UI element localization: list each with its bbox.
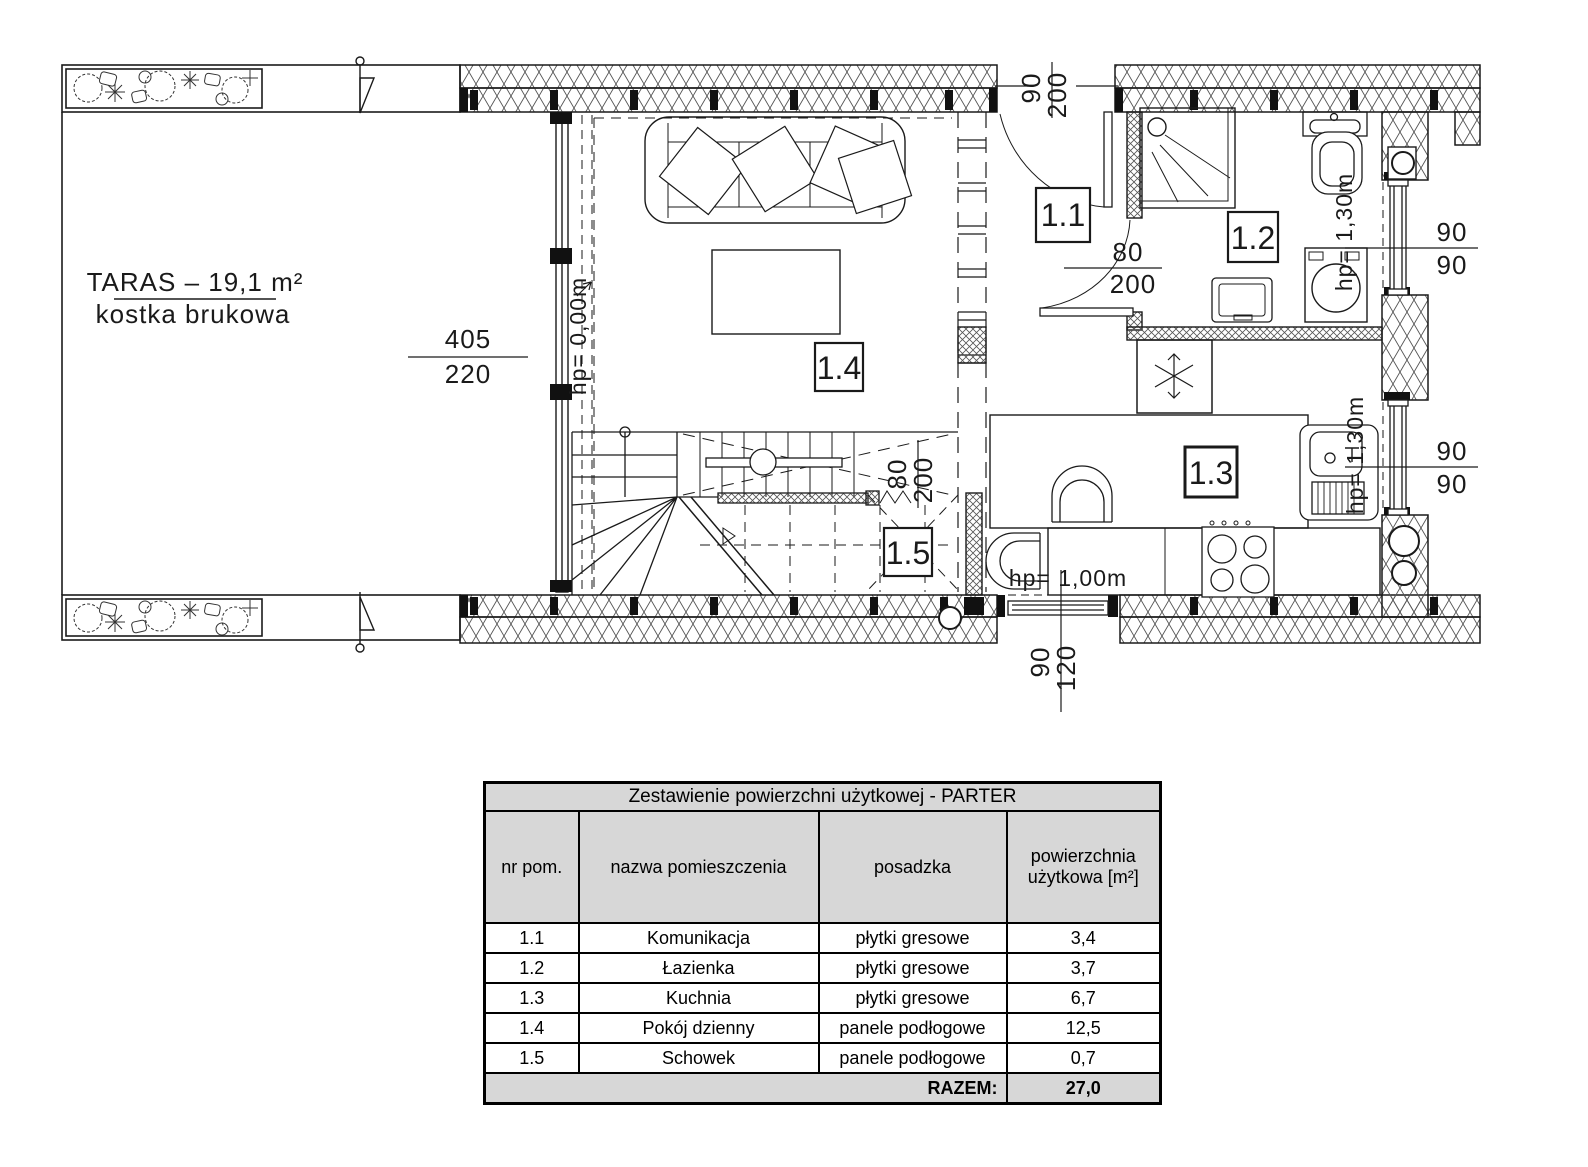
kitchen-side-window <box>1383 400 1408 515</box>
dim-entrance: 90 200 <box>995 62 1118 118</box>
floor-plan-sheet: TARAS – 19,1 m² kostka brukowa <box>0 0 1588 1167</box>
col-header-floor-finish: posadzka <box>819 811 1007 923</box>
cell-room-no: 1.4 <box>485 1013 579 1043</box>
dim-bath-door: 80 200 <box>1064 237 1162 299</box>
cell-floor-finish: płytki gresowe <box>819 953 1007 983</box>
cell-area: 6,7 <box>1007 983 1161 1013</box>
interior-partition <box>958 112 986 595</box>
room-labels <box>815 188 1278 576</box>
cell-area: 3,4 <box>1007 923 1161 953</box>
terrace <box>62 65 460 640</box>
kitchen-bottom-window <box>1008 595 1108 615</box>
cell-room-name: Komunikacja <box>579 923 819 953</box>
kitchen-table <box>990 415 1308 528</box>
terrace-material-label: kostka brukowa <box>96 299 291 329</box>
level-living-marker: hp= 0,00m <box>565 277 591 395</box>
dim-stairs: 80 200 <box>882 440 938 508</box>
planter-plants-bottom <box>74 600 258 635</box>
total-value: 27,0 <box>1007 1073 1161 1104</box>
dim-bath-window-num: 90 <box>1437 217 1468 247</box>
bath-cabinet <box>1212 278 1272 322</box>
room-label-1-2: 1.2 <box>1231 220 1275 256</box>
shower <box>1140 108 1235 208</box>
area-summary-table: Zestawienie powierzchni użytkowej - PART… <box>483 781 1159 1105</box>
table-total-row: RAZEM: 27,0 <box>485 1073 1161 1104</box>
cell-floor-finish: płytki gresowe <box>819 983 1007 1013</box>
room-label-1-4: 1.4 <box>817 350 861 386</box>
level-kitchen-side-window: hp= 1,30m <box>1342 396 1368 514</box>
section-marker-bottom <box>356 592 374 652</box>
dim-kitchen-side-window-num: 90 <box>1437 436 1468 466</box>
terrace-bottom-edge <box>62 595 460 640</box>
dim-kitchen-side-window-den: 90 <box>1437 469 1468 499</box>
coffee-table <box>712 250 840 334</box>
dim-entrance-den: 200 <box>1042 72 1072 118</box>
cell-floor-finish: panele podłogowe <box>819 1043 1007 1073</box>
room-label-1-5: 1.5 <box>886 535 930 571</box>
total-label: RAZEM: <box>485 1073 1007 1104</box>
hob <box>1202 521 1274 597</box>
cell-room-name: Pokój dzienny <box>579 1013 819 1043</box>
planter-plants-top <box>74 70 258 105</box>
dim-kitchen-bottom-window-den: 120 <box>1051 645 1081 691</box>
room-label-1-3: 1.3 <box>1189 455 1233 491</box>
dim-stairs-den: 200 <box>908 457 938 503</box>
dim-terrace-window-num: 405 <box>445 324 491 354</box>
cell-room-name: Kuchnia <box>579 983 819 1013</box>
sofa <box>645 117 912 223</box>
cell-room-name: Łazienka <box>579 953 819 983</box>
kitchen-chair-1 <box>1052 466 1112 522</box>
table-row: 1.2 Łazienka płytki gresowe 3,7 <box>485 953 1161 983</box>
dim-bath-door-den: 200 <box>1110 269 1156 299</box>
terrace-label: TARAS – 19,1 m² <box>87 267 304 297</box>
table-row: 1.5 Schowek panele podłogowe 0,7 <box>485 1043 1161 1073</box>
cell-area: 12,5 <box>1007 1013 1161 1043</box>
cell-room-no: 1.3 <box>485 983 579 1013</box>
table-row: 1.4 Pokój dzienny panele podłogowe 12,5 <box>485 1013 1161 1043</box>
table-row: 1.3 Kuchnia płytki gresowe 6,7 <box>485 983 1161 1013</box>
dim-terrace-window: 405 220 <box>408 324 528 389</box>
sofa-cushions <box>659 126 911 214</box>
wall-studs <box>460 88 1438 617</box>
cell-room-no: 1.2 <box>485 953 579 983</box>
terrace-top-edge <box>62 65 460 112</box>
col-header-room-name: nazwa pomieszczenia <box>579 811 819 923</box>
dim-kitchen-bottom-window: 90 120 hp= 1,00m <box>1009 565 1127 712</box>
dim-terrace-window-den: 220 <box>445 359 491 389</box>
snowflake-icon <box>1155 354 1193 398</box>
table-title: Zestawienie powierzchni użytkowej - PART… <box>485 783 1161 812</box>
fridge <box>1137 340 1212 413</box>
level-kitchen-bottom-window: hp= 1,00m <box>1009 565 1127 591</box>
dim-bath-door-num: 80 <box>1113 237 1144 267</box>
stairs-strip <box>718 493 868 503</box>
cell-room-no: 1.5 <box>485 1043 579 1073</box>
col-header-room-no: nr pom. <box>485 811 579 923</box>
col-header-usable-area: powierzchnia użytkowa [m²] <box>1007 811 1161 923</box>
break-symbol <box>880 491 911 503</box>
level-bath-window: hp= 1,30m <box>1331 173 1357 291</box>
cell-floor-finish: panele podłogowe <box>819 1013 1007 1043</box>
bathroom-window <box>1383 180 1408 295</box>
terrace-bottom-planter <box>66 599 262 636</box>
cell-room-no: 1.1 <box>485 923 579 953</box>
dim-bath-window-den: 90 <box>1437 250 1468 280</box>
floor-plan-drawing: TARAS – 19,1 m² kostka brukowa <box>0 0 1588 760</box>
table-row: 1.1 Komunikacja płytki gresowe 3,4 <box>485 923 1161 953</box>
cell-floor-finish: płytki gresowe <box>819 923 1007 953</box>
dim-kitchen-side-window: 90 90 hp= 1,30m <box>1342 396 1478 514</box>
cell-area: 0,7 <box>1007 1043 1161 1073</box>
cell-area: 3,7 <box>1007 953 1161 983</box>
terrace-top-planter <box>66 69 262 108</box>
room-label-1-1: 1.1 <box>1041 197 1085 233</box>
cell-room-name: Schowek <box>579 1043 819 1073</box>
